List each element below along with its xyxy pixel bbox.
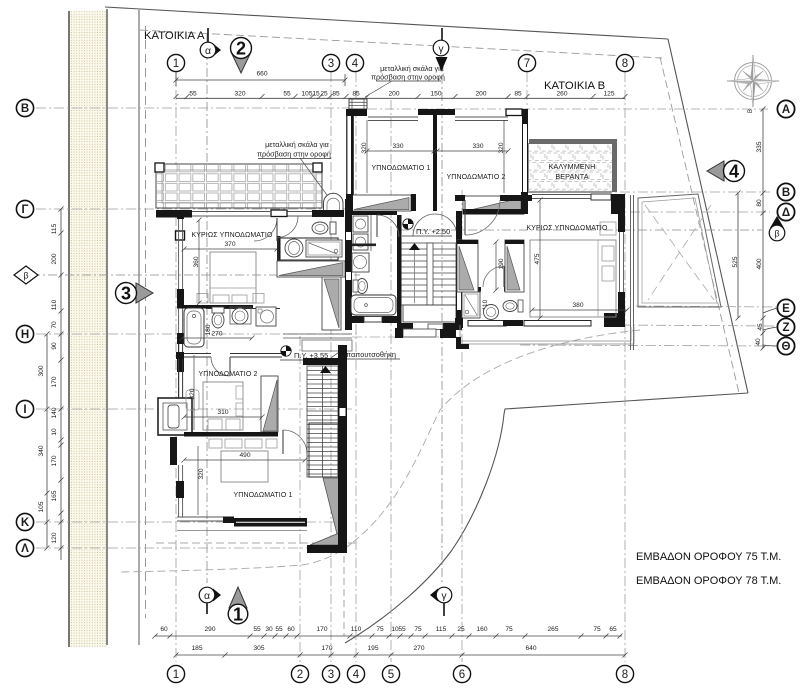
svg-text:ΚΑΛΥΜΜΕΝΗ: ΚΑΛΥΜΜΕΝΗ [549,162,596,171]
svg-text:1: 1 [233,605,243,625]
svg-text:4: 4 [353,669,360,681]
svg-text:60: 60 [160,626,168,633]
svg-text:360: 360 [193,256,200,267]
svg-text:ΚΑΤΟΙΚΙΑ Β: ΚΑΤΟΙΚΙΑ Β [544,80,605,92]
svg-text:330: 330 [392,143,403,150]
svg-text:75: 75 [505,626,513,633]
svg-text:110: 110 [351,626,362,633]
svg-text:320: 320 [234,90,245,97]
svg-text:2: 2 [236,39,246,59]
svg-text:Ι: Ι [23,404,26,416]
svg-text:320: 320 [198,468,205,479]
svg-text:640: 640 [525,645,536,652]
svg-text:α: α [204,590,210,602]
svg-text:150: 150 [430,90,441,97]
svg-text:335: 335 [756,141,763,152]
svg-text:200: 200 [51,253,58,264]
svg-text:270: 270 [211,331,222,338]
svg-text:310: 310 [217,409,228,416]
svg-text:Ζ: Ζ [782,322,789,334]
svg-text:85: 85 [332,90,340,97]
svg-text:ΥΠΝΟΔΩΜΑΤΙΟ 1: ΥΠΝΟΔΩΜΑΤΙΟ 1 [371,165,430,172]
svg-text:55: 55 [189,90,197,97]
svg-text:πρόσβαση στην οροφή: πρόσβαση στην οροφή [257,150,331,159]
svg-text:80: 80 [756,199,763,207]
svg-text:265: 265 [547,626,558,633]
svg-text:370: 370 [224,241,235,248]
svg-text:3: 3 [328,669,334,681]
svg-text:2: 2 [297,669,303,681]
svg-text:55: 55 [275,626,283,633]
svg-text:320: 320 [361,142,368,153]
svg-text:γ: γ [441,590,447,602]
svg-text:45: 45 [757,323,764,331]
svg-text:Β: Β [782,187,790,199]
svg-text:Κ: Κ [21,517,30,529]
svg-text:ΚΥΡΙΩΣ ΥΠΝΟΔΩΜΑΤΙΟ: ΚΥΡΙΩΣ ΥΠΝΟΔΩΜΑΤΙΟ [526,225,608,232]
svg-text:60: 60 [287,626,295,633]
svg-text:ΥΠΝΟΔΩΜΑΤΙΟ 2: ΥΠΝΟΔΩΜΑΤΙΟ 2 [198,371,257,378]
svg-text:Β: Β [21,103,29,115]
svg-text:120: 120 [51,532,58,543]
svg-text:Γ: Γ [22,204,29,216]
svg-text:115: 115 [436,626,447,633]
svg-text:170: 170 [321,645,332,652]
svg-text:4: 4 [729,162,739,182]
svg-text:25: 25 [457,626,465,633]
svg-text:65: 65 [609,626,617,633]
svg-text:195: 195 [367,645,378,652]
svg-text:πρόσβαση στην οροφή: πρόσβαση στην οροφή [371,73,445,82]
svg-text:3: 3 [328,58,334,70]
svg-text:ΕΜΒΑΔΟΝ ΟΡΟΦΟΥ 78 Τ.Μ.: ΕΜΒΑΔΟΝ ΟΡΟΦΟΥ 78 Τ.Μ. [636,575,781,587]
svg-text:270: 270 [413,645,424,652]
svg-text:320: 320 [189,388,196,399]
svg-text:55: 55 [283,90,291,97]
svg-text:μεταλλική σκάλα για: μεταλλική σκάλα για [265,140,329,149]
svg-text:4: 4 [352,58,359,70]
svg-text:1: 1 [173,58,179,70]
svg-text:3: 3 [121,284,131,304]
svg-text:115: 115 [51,223,58,234]
svg-text:ΥΠΝΟΔΩΜΑΤΙΟ 1: ΥΠΝΟΔΩΜΑΤΙΟ 1 [233,492,292,499]
svg-text:660: 660 [256,71,267,78]
svg-text:320: 320 [498,142,505,153]
svg-text:παπουτσοθήκη: παπουτσοθήκη [346,350,396,359]
svg-text:Λ: Λ [21,543,29,555]
svg-text:170: 170 [51,376,58,387]
svg-text:Θ: Θ [782,341,791,353]
svg-text:200: 200 [388,90,399,97]
svg-text:α: α [205,45,211,57]
svg-text:Π.Υ. +2.50: Π.Υ. +2.50 [416,227,450,236]
svg-text:β: β [774,229,779,239]
svg-text:Η: Η [21,329,29,341]
svg-text:55: 55 [398,626,406,633]
svg-text:160: 160 [476,626,487,633]
svg-text:55: 55 [253,626,261,633]
svg-text:Α: Α [782,104,790,116]
svg-text:Δ: Δ [782,207,790,219]
svg-text:110: 110 [51,299,58,310]
svg-text:40: 40 [755,338,762,346]
svg-text:290: 290 [204,626,215,633]
svg-text:105: 105 [301,90,312,97]
svg-text:85: 85 [352,90,360,97]
svg-text:ΚΥΡΙΩΣ ΥΠΝΟΔΩΜΑΤΙΟ: ΚΥΡΙΩΣ ΥΠΝΟΔΩΜΑΤΙΟ [191,232,273,239]
svg-text:380: 380 [572,302,583,309]
svg-text:8: 8 [622,58,628,70]
svg-text:7: 7 [524,58,530,70]
svg-text:1: 1 [173,669,179,681]
svg-text:105: 105 [38,501,45,512]
svg-text:140: 140 [51,407,58,418]
svg-text:200: 200 [475,90,486,97]
svg-text:340: 340 [38,445,45,456]
svg-text:30: 30 [265,626,273,633]
svg-text:ΒΕΡΑΝΤΑ: ΒΕΡΑΝΤΑ [555,172,588,181]
svg-text:170: 170 [316,626,327,633]
svg-text:γ: γ [438,43,444,55]
svg-text:300: 300 [38,365,45,376]
svg-text:Ε: Ε [782,303,790,315]
svg-text:90: 90 [51,342,58,350]
svg-text:15: 15 [312,90,320,97]
svg-text:400: 400 [756,258,763,269]
svg-text:525: 525 [732,256,739,267]
svg-text:10: 10 [51,428,58,436]
svg-text:25: 25 [320,90,328,97]
svg-text:8: 8 [622,669,628,681]
svg-text:70: 70 [51,321,58,329]
svg-text:165: 165 [51,490,58,501]
svg-text:170: 170 [51,455,58,466]
svg-text:ΥΠΝΟΔΩΜΑΤΙΟ 2: ΥΠΝΟΔΩΜΑΤΙΟ 2 [446,174,505,181]
svg-text:330: 330 [472,143,483,150]
svg-text:190: 190 [498,258,505,269]
svg-text:75: 75 [593,626,601,633]
svg-text:475: 475 [534,253,541,264]
svg-text:Β: Β [748,109,754,113]
svg-text:5: 5 [388,669,394,681]
svg-text:ΚΑΤΟΙΚΙΑ Α: ΚΑΤΟΙΚΙΑ Α [144,30,205,42]
svg-text:75: 75 [376,626,384,633]
svg-text:185: 185 [191,645,202,652]
svg-text:6: 6 [459,669,465,681]
svg-text:305: 305 [253,645,264,652]
svg-text:75: 75 [414,626,422,633]
svg-text:490: 490 [239,452,250,459]
svg-text:ΕΜΒΑΔΟΝ ΟΡΟΦΟΥ 75 Τ.Μ.: ΕΜΒΑΔΟΝ ΟΡΟΦΟΥ 75 Τ.Μ. [636,551,781,563]
svg-text:125: 125 [603,90,614,97]
svg-text:85: 85 [514,90,522,97]
svg-text:β: β [23,271,28,281]
